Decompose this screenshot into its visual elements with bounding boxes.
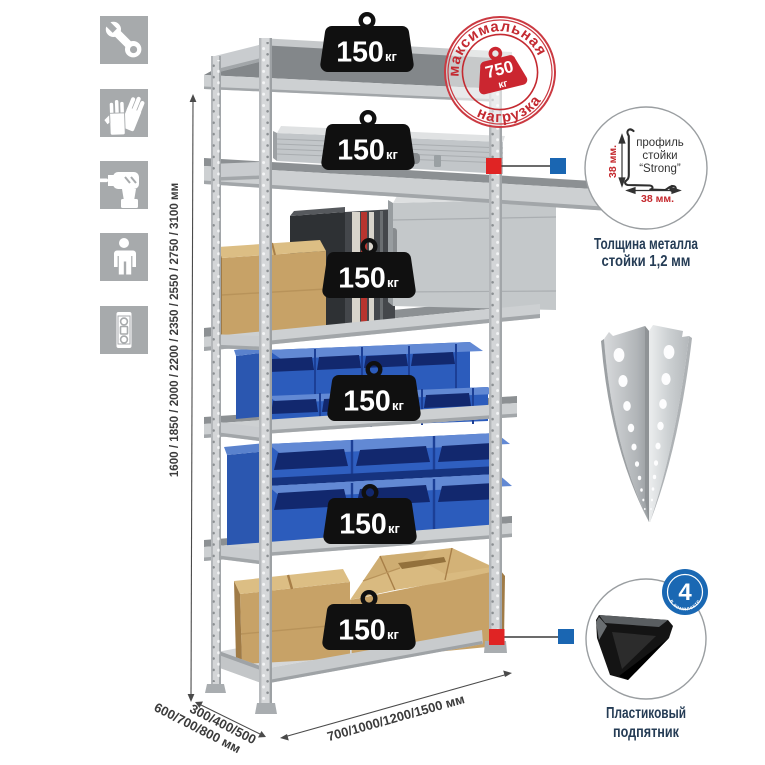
svg-text:150: 150 — [343, 386, 391, 418]
svg-text:38 мм.: 38 мм. — [607, 145, 619, 178]
svg-text:150: 150 — [339, 509, 387, 541]
svg-text:150: 150 — [338, 615, 386, 647]
svg-text:кг: кг — [385, 49, 398, 64]
svg-text:4: 4 — [678, 579, 692, 606]
svg-text:профиль: профиль — [636, 137, 684, 149]
svg-text:кг: кг — [387, 275, 400, 290]
svg-text:кг: кг — [387, 627, 400, 642]
svg-text:подпятник: подпятник — [613, 724, 679, 741]
svg-text:кг: кг — [392, 398, 405, 413]
svg-text:кг: кг — [388, 521, 401, 536]
svg-text:стойки 1,2 мм: стойки 1,2 мм — [602, 253, 691, 270]
svg-text:стойки: стойки — [642, 150, 677, 162]
svg-text:“Strong”: “Strong” — [639, 163, 681, 175]
svg-text:Пластиковый: Пластиковый — [606, 705, 686, 722]
svg-text:150: 150 — [337, 135, 385, 167]
svg-text:150: 150 — [336, 37, 384, 69]
svg-text:38 мм.: 38 мм. — [641, 193, 674, 205]
svg-text:Толщина металла: Толщина металла — [594, 236, 698, 253]
svg-text:1600 / 1850 / 2000 / 2200 / 23: 1600 / 1850 / 2000 / 2200 / 2350 / 2550 … — [168, 183, 181, 477]
svg-text:150: 150 — [338, 263, 386, 295]
svg-text:кг: кг — [386, 147, 399, 162]
